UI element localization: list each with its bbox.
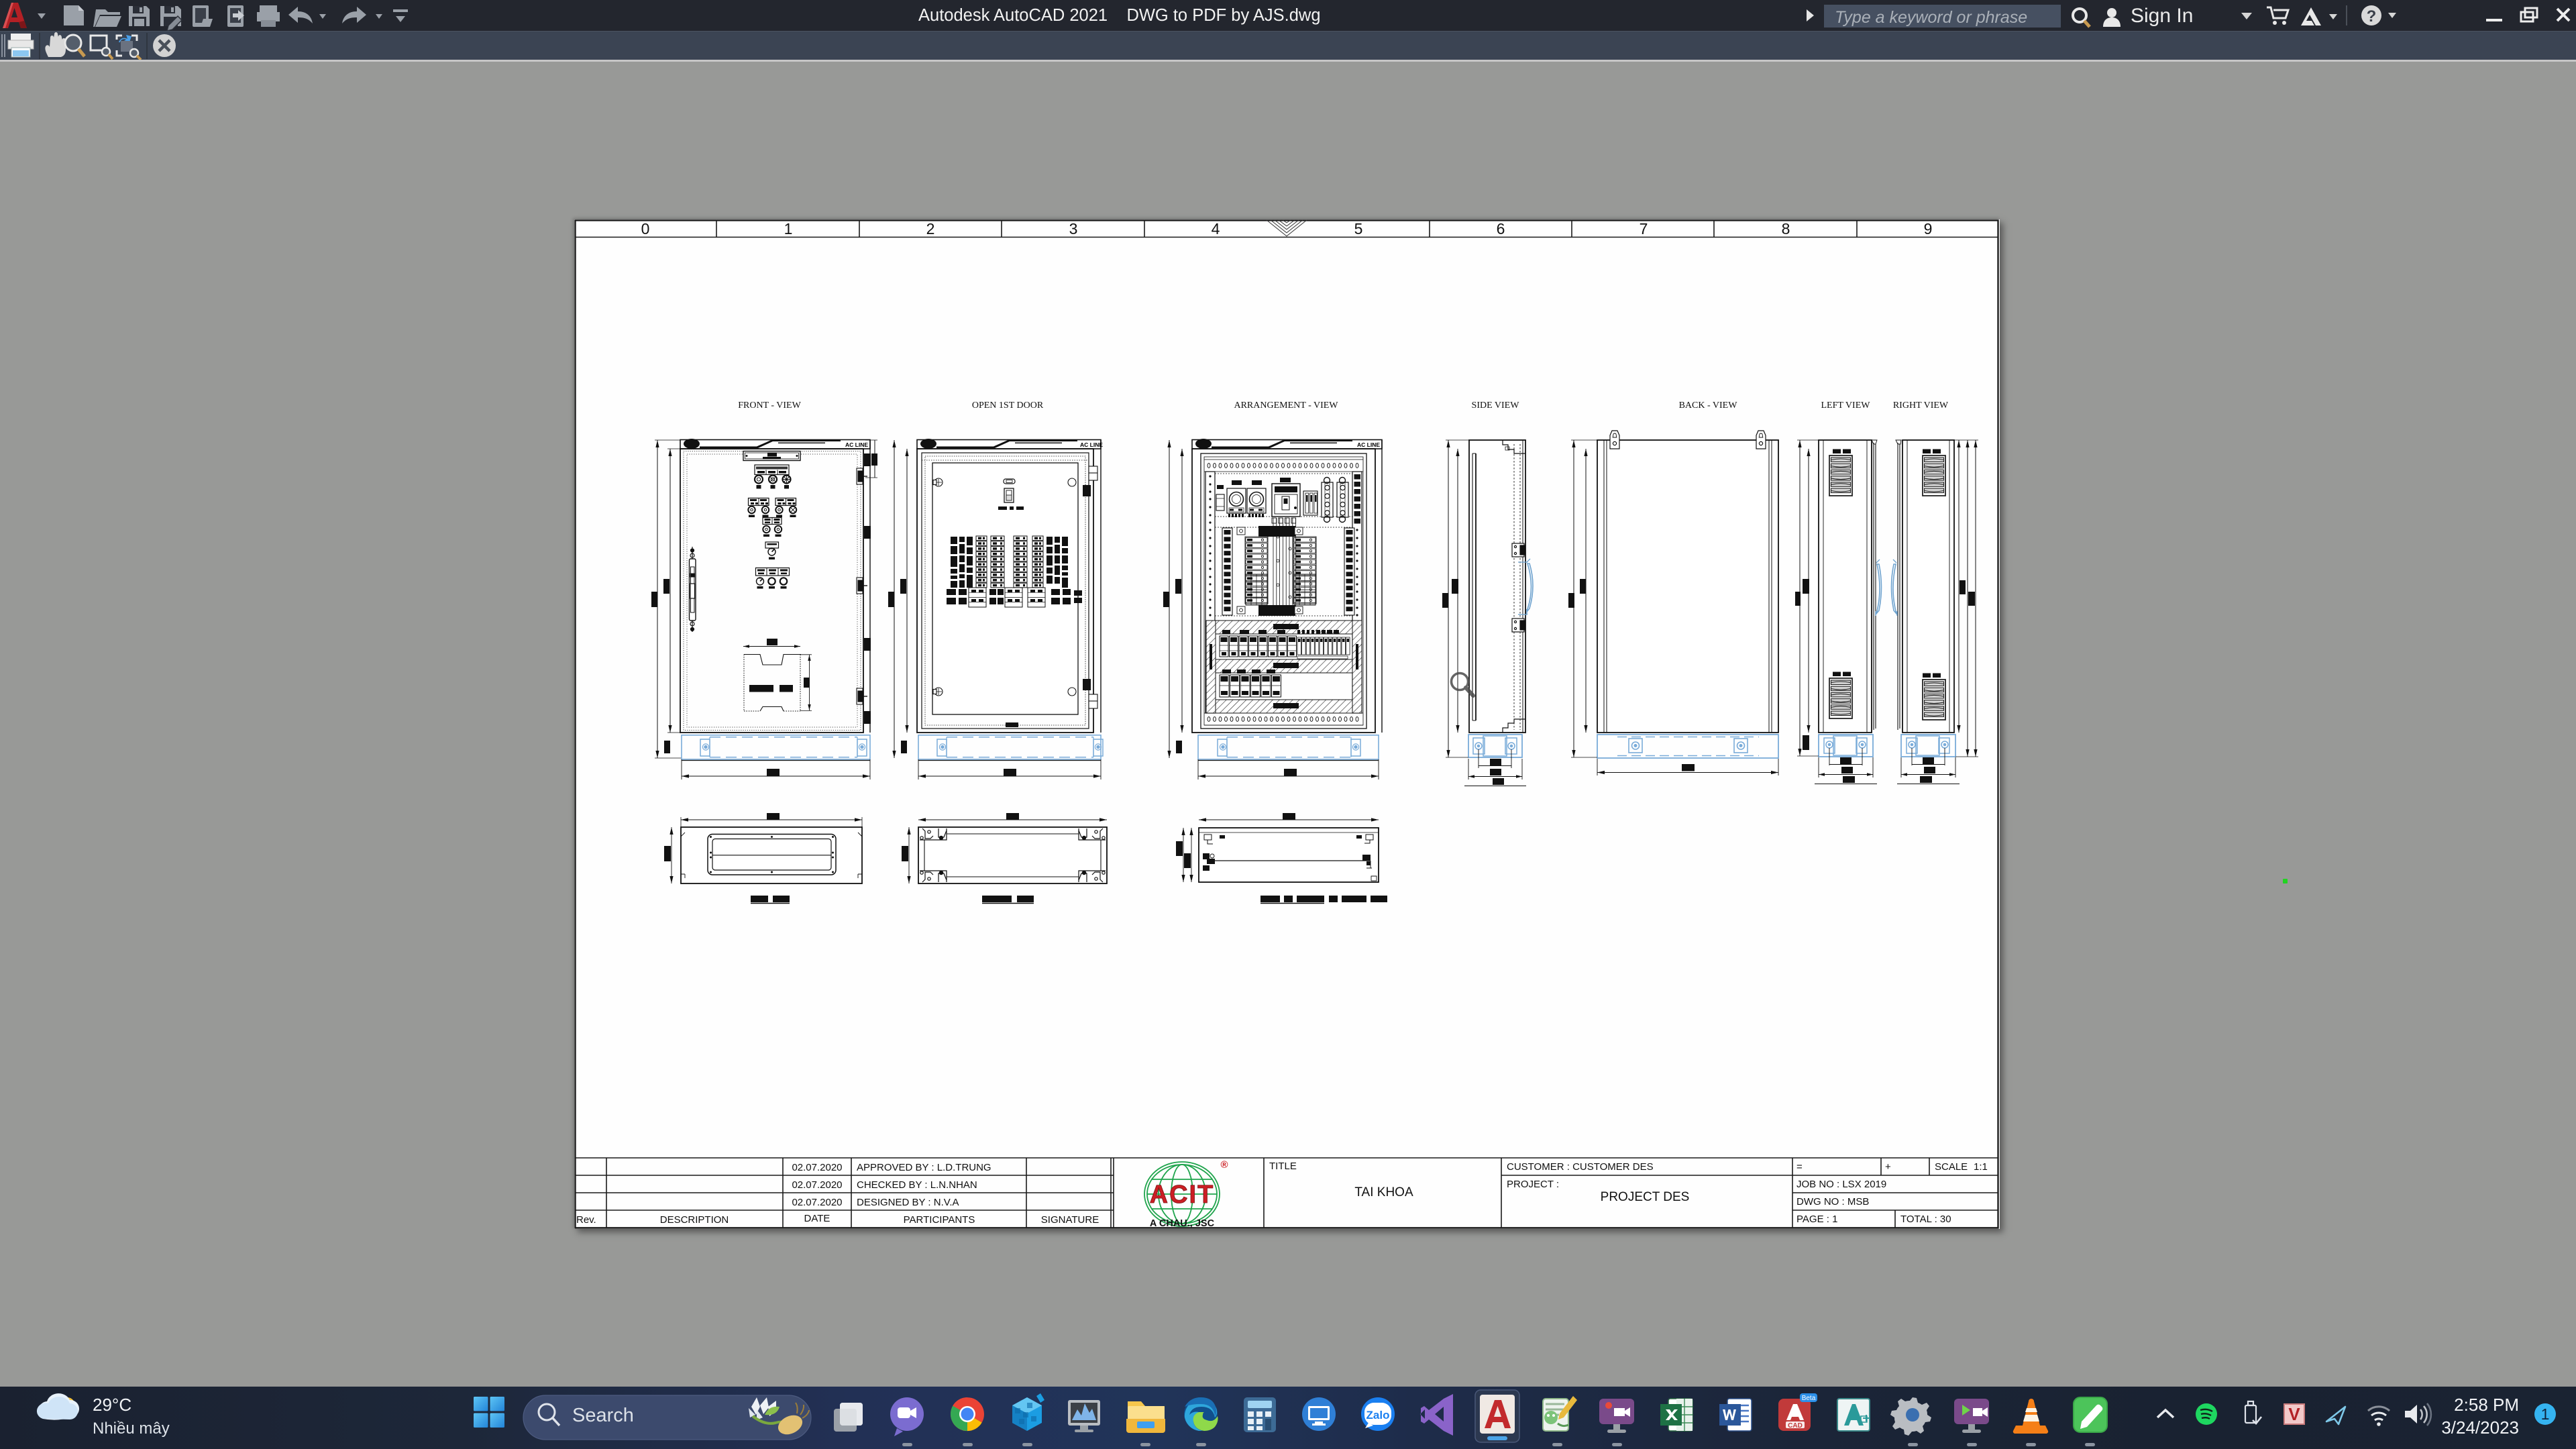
svg-text:6: 6 bbox=[1497, 220, 1505, 237]
svg-text:1: 1 bbox=[2541, 1405, 2550, 1423]
svg-text:DESIGNED BY : N.V.A: DESIGNED BY : N.V.A bbox=[857, 1197, 959, 1208]
svg-text:+: + bbox=[1885, 1161, 1891, 1173]
svg-text:TOTAL : 30: TOTAL : 30 bbox=[1900, 1214, 1951, 1225]
svg-text:29°C: 29°C bbox=[93, 1395, 131, 1415]
svg-text:AC LINE: AC LINE bbox=[1357, 441, 1380, 448]
svg-text:AC LINE: AC LINE bbox=[1080, 441, 1103, 448]
svg-text:DATE: DATE bbox=[804, 1213, 830, 1224]
svg-text:A CHAU., JSC: A CHAU., JSC bbox=[1150, 1218, 1215, 1229]
svg-text:PROJECT DES: PROJECT DES bbox=[1601, 1190, 1690, 1204]
svg-text:=: = bbox=[1796, 1161, 1803, 1173]
svg-text:0: 0 bbox=[641, 220, 650, 237]
svg-text:02.07.2020: 02.07.2020 bbox=[792, 1179, 842, 1191]
svg-text:BACK - VIEW: BACK - VIEW bbox=[1679, 400, 1738, 411]
svg-text:OPEN 1ST DOOR: OPEN 1ST DOOR bbox=[972, 400, 1044, 411]
svg-text:02.07.2020: 02.07.2020 bbox=[792, 1197, 842, 1208]
svg-text:RIGHT VIEW: RIGHT VIEW bbox=[1893, 400, 1949, 411]
svg-text:9: 9 bbox=[1924, 220, 1933, 237]
svg-text:ACIT: ACIT bbox=[1150, 1181, 1215, 1209]
svg-text:PARTICIPANTS: PARTICIPANTS bbox=[904, 1214, 975, 1226]
svg-text:3/24/2023: 3/24/2023 bbox=[2441, 1417, 2519, 1438]
svg-text:APPROVED BY : L.D.TRUNG: APPROVED BY : L.D.TRUNG bbox=[857, 1162, 991, 1173]
svg-text:FRONT - VIEW: FRONT - VIEW bbox=[738, 400, 801, 411]
svg-text:?: ? bbox=[2367, 7, 2377, 25]
svg-text:DWG NO : MSB: DWG NO : MSB bbox=[1796, 1196, 1869, 1207]
svg-text:2:58 PM: 2:58 PM bbox=[2454, 1395, 2519, 1415]
svg-text:3: 3 bbox=[1069, 220, 1078, 237]
svg-text:Beta: Beta bbox=[1802, 1395, 1816, 1402]
svg-text:8: 8 bbox=[1782, 220, 1790, 237]
svg-text:SIGNATURE: SIGNATURE bbox=[1041, 1214, 1099, 1226]
svg-text:SIDE VIEW: SIDE VIEW bbox=[1472, 400, 1520, 411]
svg-text:SCALE: SCALE bbox=[1935, 1161, 1968, 1173]
svg-text:AC LINE: AC LINE bbox=[845, 441, 868, 448]
svg-text:TAI KHOA: TAI KHOA bbox=[1354, 1185, 1413, 1199]
svg-text:CHECKED BY : L.N.NHAN: CHECKED BY : L.N.NHAN bbox=[857, 1179, 977, 1191]
svg-text:Nhiều mây: Nhiều mây bbox=[93, 1419, 170, 1438]
svg-text:Search: Search bbox=[572, 1405, 634, 1426]
svg-text:JOB NO : LSX 2019: JOB NO : LSX 2019 bbox=[1796, 1179, 1886, 1190]
svg-text:®: ® bbox=[1220, 1159, 1228, 1171]
svg-text:V: V bbox=[2288, 1404, 2300, 1424]
svg-text:PROJECT :: PROJECT : bbox=[1507, 1179, 1559, 1190]
svg-text:1:1: 1:1 bbox=[1974, 1161, 1988, 1173]
svg-text:CUSTOMER : CUSTOMER DES: CUSTOMER : CUSTOMER DES bbox=[1507, 1161, 1654, 1173]
svg-text:CAD: CAD bbox=[1788, 1422, 1803, 1430]
svg-text:PAGE : 1: PAGE : 1 bbox=[1796, 1214, 1837, 1225]
svg-text:ARRANGEMENT - VIEW: ARRANGEMENT - VIEW bbox=[1234, 400, 1338, 411]
svg-text:2: 2 bbox=[926, 220, 935, 237]
svg-text:TITLE: TITLE bbox=[1269, 1161, 1297, 1172]
svg-text:Rev.: Rev. bbox=[576, 1214, 596, 1226]
svg-text:7: 7 bbox=[1640, 220, 1648, 237]
svg-text:02.07.2020: 02.07.2020 bbox=[792, 1162, 842, 1173]
svg-text:5: 5 bbox=[1354, 220, 1363, 237]
svg-text:Zalo: Zalo bbox=[1366, 1409, 1390, 1421]
svg-text:1: 1 bbox=[784, 220, 793, 237]
svg-text:DESCRIPTION: DESCRIPTION bbox=[660, 1214, 729, 1226]
svg-text:LEFT VIEW: LEFT VIEW bbox=[1821, 400, 1871, 411]
svg-text:4: 4 bbox=[1212, 220, 1220, 237]
